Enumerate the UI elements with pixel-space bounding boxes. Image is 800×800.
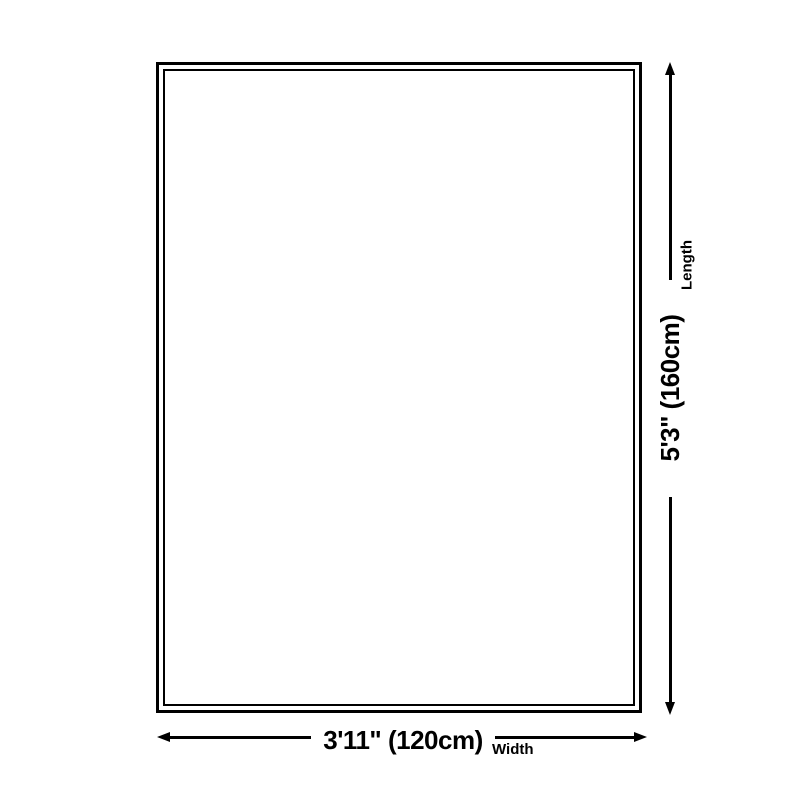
rug-inner-outline xyxy=(163,69,635,706)
length-label: Length xyxy=(680,240,695,290)
width-label: Width xyxy=(492,742,534,757)
width-arrow-line-left xyxy=(170,736,311,739)
length-arrow-line-top xyxy=(669,75,672,280)
width-arrow-line-right xyxy=(495,736,634,739)
arrow-right-icon xyxy=(634,732,647,742)
arrow-up-icon xyxy=(665,62,675,75)
length-arrow-line-bottom xyxy=(669,497,672,702)
width-value: 3'11" (120cm) xyxy=(323,727,482,753)
arrow-down-icon xyxy=(665,702,675,715)
rug-outline xyxy=(156,62,642,713)
length-value: 5'3" (160cm) xyxy=(657,315,683,462)
rug-size-diagram: Length 5'3" (160cm) 3'11" (120cm) Width xyxy=(0,0,800,800)
arrow-left-icon xyxy=(157,732,170,742)
